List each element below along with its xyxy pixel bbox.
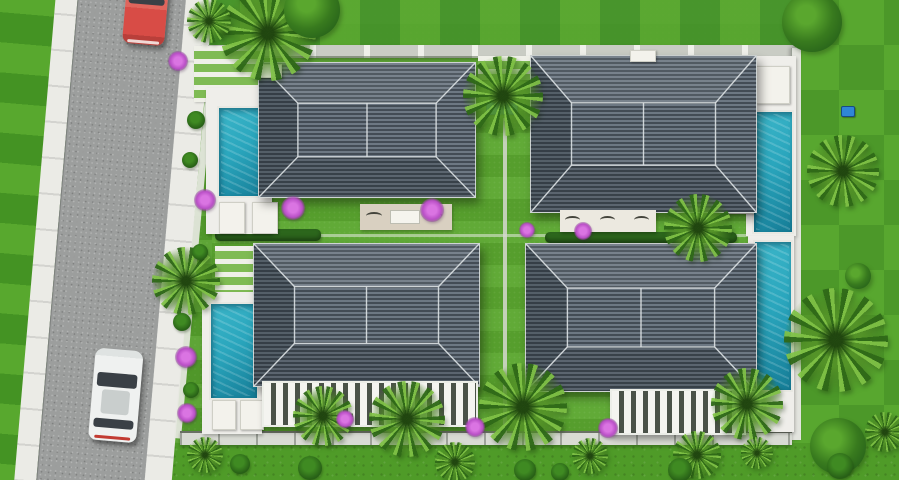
sun-lounger-pad <box>240 400 264 430</box>
white-car-roof <box>100 390 131 416</box>
lawn-right-checkered <box>794 0 899 480</box>
white-car <box>88 347 144 443</box>
entry-pad <box>258 64 282 78</box>
terrace-top-right-villa <box>560 210 656 232</box>
roof-ridge-lines <box>254 244 479 386</box>
center-garden-path <box>503 118 507 436</box>
entry-pad <box>630 50 656 62</box>
pergola-bottom-left-villa <box>262 381 478 427</box>
red-car <box>122 0 169 46</box>
white-car-windshield <box>96 372 137 389</box>
sun-lounger-pad <box>212 400 236 430</box>
terrace-top-left-villa <box>360 204 452 230</box>
patio-furniture-mark <box>366 212 382 220</box>
aerial-site-render <box>0 0 899 480</box>
sun-lounger-pad <box>756 66 790 104</box>
sun-lounger-pad <box>252 202 278 234</box>
villa-roof-bottom-left <box>253 243 480 387</box>
blue-sun-lounger <box>502 102 518 115</box>
patio-table <box>390 210 420 224</box>
patio-furniture-mark <box>426 212 442 220</box>
red-car-windshield <box>129 0 165 6</box>
pool-bottom-left <box>209 302 259 400</box>
garden-bottom-strip <box>170 443 899 480</box>
villa-roof-bottom-right <box>525 243 757 392</box>
roof-ridge-lines <box>526 244 756 391</box>
pool-top-right <box>752 110 794 234</box>
blue-garden-item <box>841 106 855 117</box>
villa-roof-top-right <box>530 55 757 213</box>
white-car-rear-window <box>93 417 134 430</box>
sun-lounger-pad <box>219 202 245 234</box>
pergola-bottom-right-villa <box>610 389 746 435</box>
hedge-row <box>545 232 737 243</box>
roof-ridge-lines <box>259 63 475 197</box>
blue-sun-lounger <box>486 102 502 115</box>
villa-roof-top-left <box>258 62 476 198</box>
patio-furniture-mark <box>600 216 615 224</box>
striped-planting-bed <box>478 56 532 80</box>
white-car-taillights <box>94 434 131 441</box>
patio-furniture-mark <box>565 216 580 224</box>
roof-ridge-lines <box>531 56 756 212</box>
pool-bottom-right <box>753 240 793 392</box>
patio-furniture-mark <box>634 216 649 224</box>
